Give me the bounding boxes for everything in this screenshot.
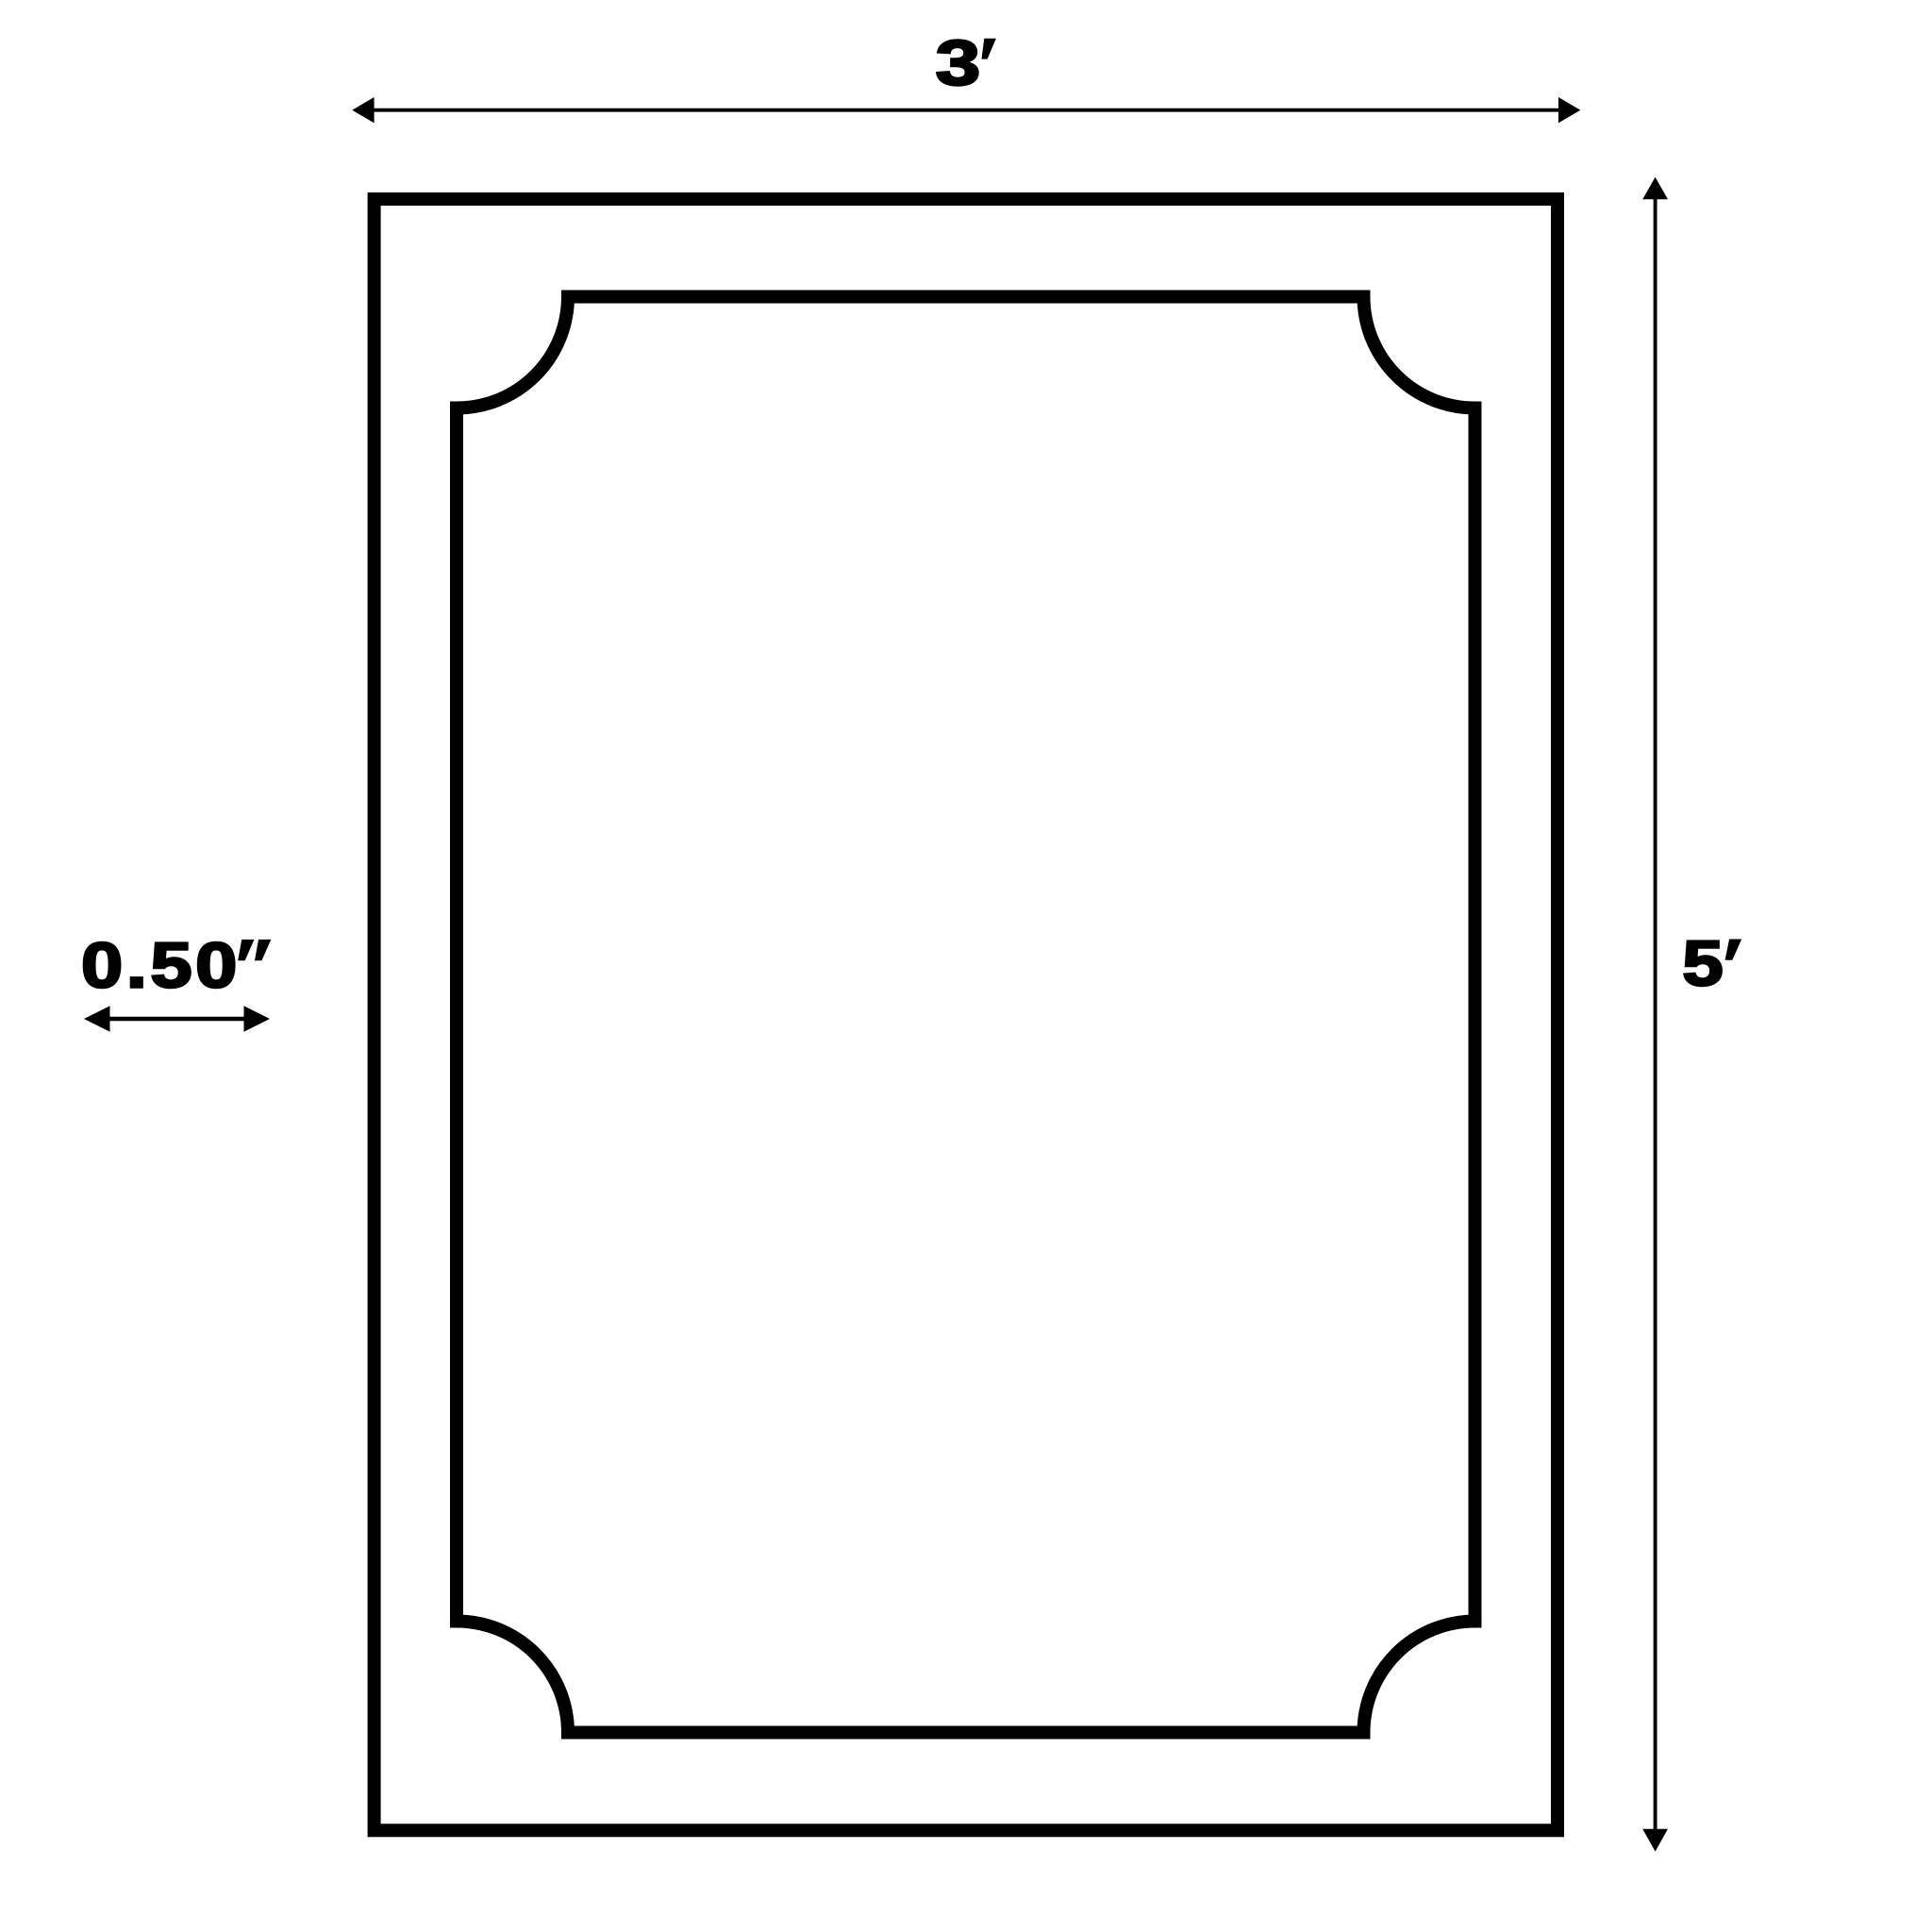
svg-text:3: 3 bbox=[936, 27, 981, 99]
svg-text:5: 5 bbox=[1682, 927, 1723, 999]
svg-text:0.50: 0.50 bbox=[81, 929, 241, 1001]
